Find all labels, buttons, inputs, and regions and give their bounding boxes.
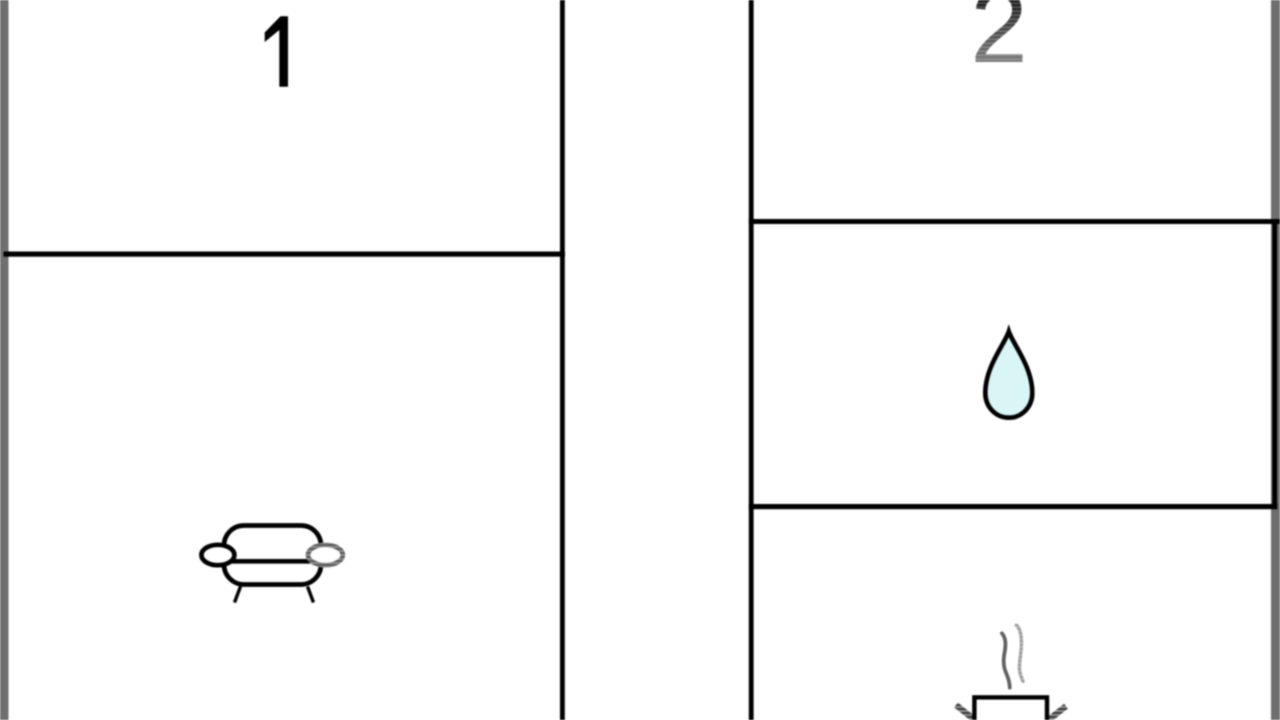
svg-text:2: 2: [970, 0, 1027, 84]
